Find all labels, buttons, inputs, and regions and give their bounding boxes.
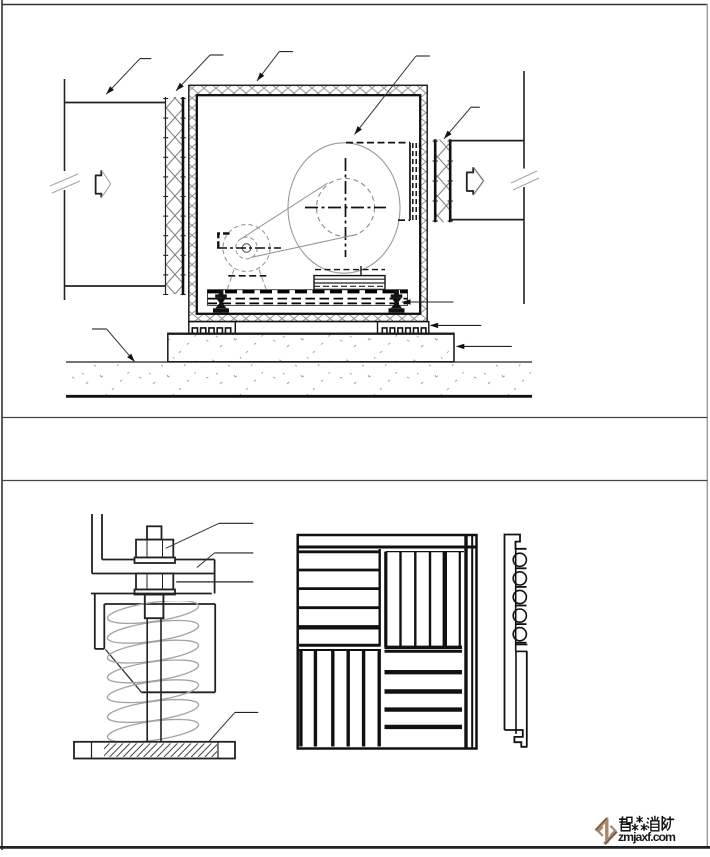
svg-text:zmjaxf.com: zmjaxf.com — [618, 830, 676, 844]
